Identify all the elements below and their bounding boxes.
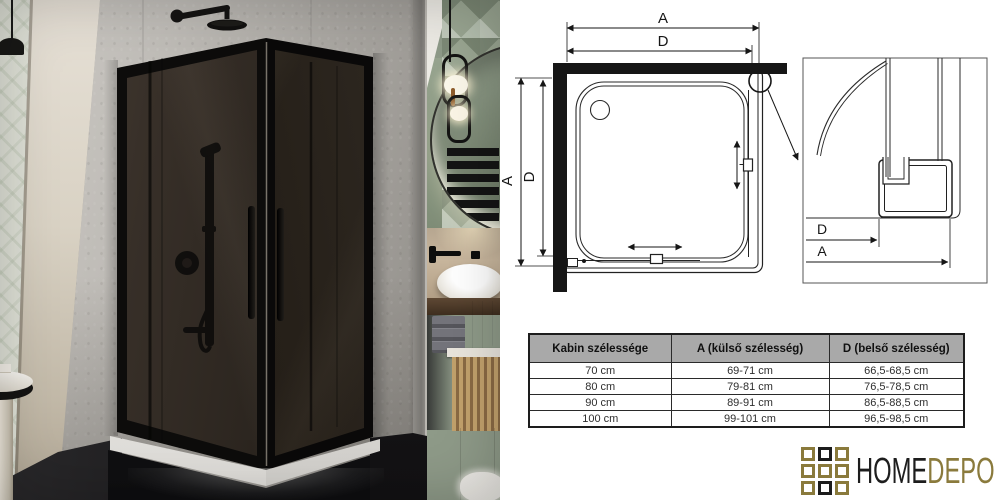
dim-label-D-detail: D	[817, 221, 827, 237]
table-row: 70 cm 69-71 cm 66,5-68,5 cm	[529, 363, 964, 379]
dim-label-A-top: A	[658, 10, 668, 27]
wall-left	[553, 63, 567, 292]
tray-outline	[576, 82, 748, 262]
logo-square	[835, 447, 849, 461]
logo-grid-icon	[801, 447, 849, 495]
drain	[591, 101, 610, 120]
logo-square	[801, 464, 815, 478]
dim-label-D-left: D	[521, 171, 538, 182]
dimensions-table: Kabin szélessége A (külső szélesség) D (…	[528, 333, 965, 428]
homedepo-logo: HOMEDEPO	[801, 447, 1000, 495]
logo-text-home: HOME	[856, 450, 927, 491]
corner-detail-diagram: D A	[800, 40, 1000, 290]
table-row: 80 cm 79-81 cm 76,5-78,5 cm	[529, 379, 964, 395]
cell: 79-81 cm	[671, 379, 829, 395]
door-handle-bottom-sym	[651, 255, 663, 264]
page: A D A D	[0, 0, 1000, 500]
cell: 86,5-88,5 cm	[829, 395, 964, 411]
logo-square	[835, 481, 849, 495]
logo-square	[818, 481, 832, 495]
corner-bracket	[568, 259, 578, 267]
logo-square	[818, 447, 832, 461]
header-outer-width: A (külső szélesség)	[671, 334, 829, 363]
header-inner-width: D (belső szélesség)	[829, 334, 964, 363]
dim-label-A-left: A	[500, 176, 516, 186]
cell: 70 cm	[529, 363, 671, 379]
cell: 80 cm	[529, 379, 671, 395]
header-cabin-width: Kabin szélessége	[529, 334, 671, 363]
logo-text-depo: DEPO	[927, 450, 994, 491]
cell: 90 cm	[529, 395, 671, 411]
detail-leader-line	[768, 90, 798, 160]
table-header-row: Kabin szélessége A (külső szélesség) D (…	[529, 334, 964, 363]
technical-panel: A D A D	[500, 0, 1000, 500]
logo-square	[801, 481, 815, 495]
dim-label-A-detail: A	[817, 243, 827, 259]
logo-square	[818, 464, 832, 478]
photo-vignette	[0, 0, 500, 500]
logo-wordmark: HOMEDEPO	[856, 453, 995, 489]
door-handle-right-sym	[744, 159, 753, 171]
cell: 66,5-68,5 cm	[829, 363, 964, 379]
cell: 100 cm	[529, 411, 671, 428]
table-row: 90 cm 89-91 cm 86,5-88,5 cm	[529, 395, 964, 411]
cell: 69-71 cm	[671, 363, 829, 379]
cell: 89-91 cm	[671, 395, 829, 411]
dim-label-D-top: D	[658, 33, 669, 50]
bathroom-photo	[0, 0, 500, 500]
logo-square	[801, 447, 815, 461]
cell: 96,5-98,5 cm	[829, 411, 964, 428]
cell: 76,5-78,5 cm	[829, 379, 964, 395]
table-row: 100 cm 99-101 cm 96,5-98,5 cm	[529, 411, 964, 428]
logo-square	[835, 464, 849, 478]
cell: 99-101 cm	[671, 411, 829, 428]
